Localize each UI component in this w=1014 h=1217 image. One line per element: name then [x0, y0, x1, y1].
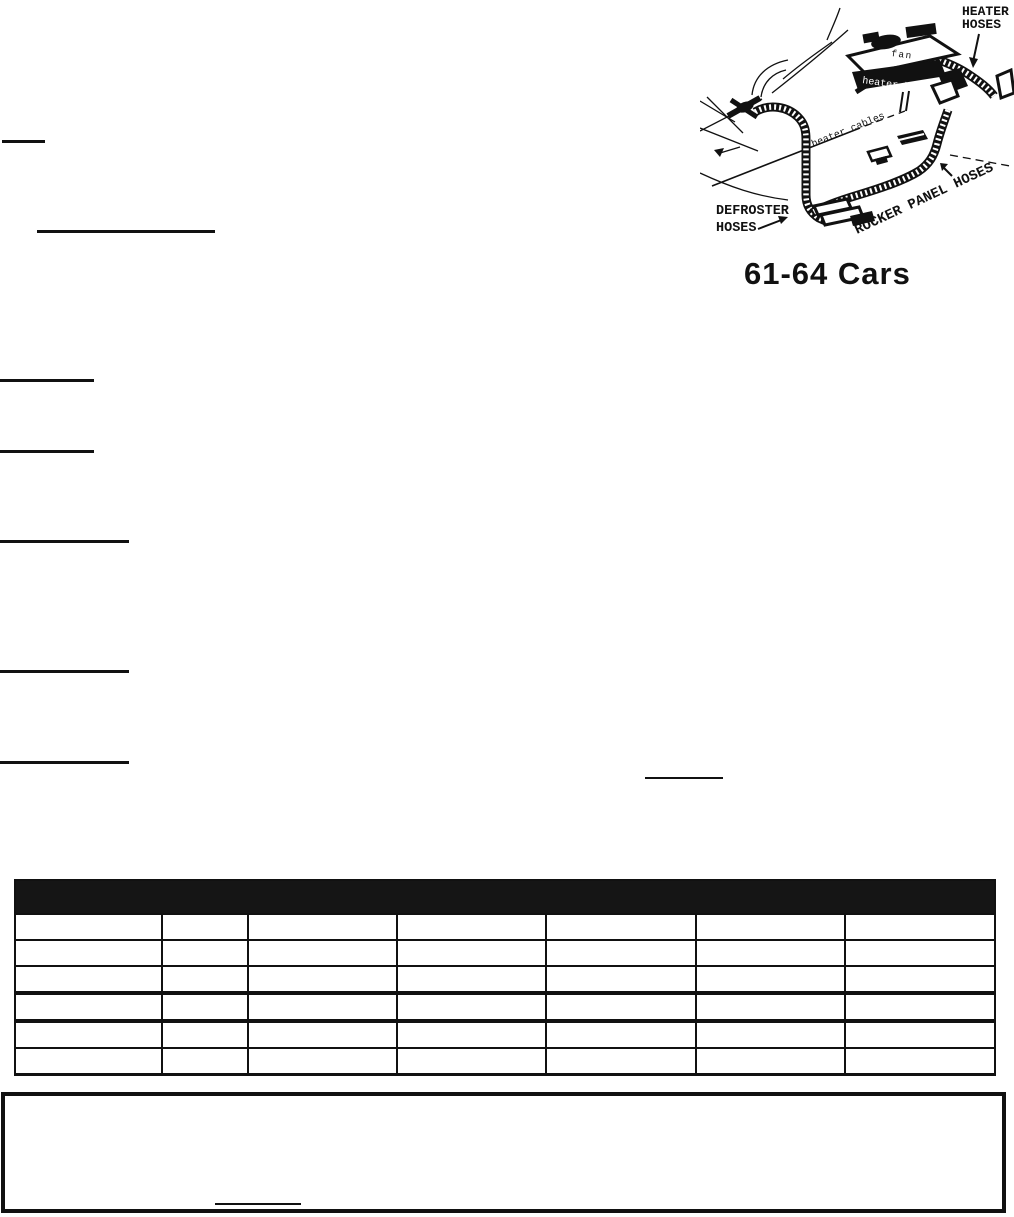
table-row	[15, 1048, 995, 1075]
table-row	[15, 966, 995, 993]
illustration-caption: 61-64 Cars	[744, 256, 964, 292]
underline-rule	[0, 761, 129, 764]
defroster-hoses-label-line2: HOSES	[716, 221, 757, 236]
heater-hose-diagram: HEATER HOSES fan heater box heater cable…	[700, 0, 1014, 300]
underline-rule	[0, 379, 94, 382]
table-row	[15, 1021, 995, 1048]
underline-rule	[0, 670, 129, 673]
table-row	[15, 940, 995, 966]
table-row	[15, 993, 995, 1021]
table-header-cell	[15, 880, 995, 914]
table-row	[15, 914, 995, 940]
catalog-page: HEATER HOSES fan heater box heater cable…	[0, 0, 1014, 1217]
underline-rule	[37, 230, 215, 233]
heater-hoses-label-line2: HOSES	[962, 17, 1001, 32]
note-box	[1, 1092, 1006, 1213]
table-header-bar	[15, 880, 995, 914]
underline-rule	[645, 777, 723, 779]
underline-rule	[0, 540, 129, 543]
underline-rule	[2, 140, 45, 143]
heater-cables-label: heater cables	[810, 110, 887, 150]
parts-table	[14, 879, 996, 1076]
defroster-hoses-label-line1: DEFROSTER	[716, 204, 790, 219]
underline-rule	[0, 450, 94, 453]
note-underline-rule	[215, 1203, 301, 1205]
